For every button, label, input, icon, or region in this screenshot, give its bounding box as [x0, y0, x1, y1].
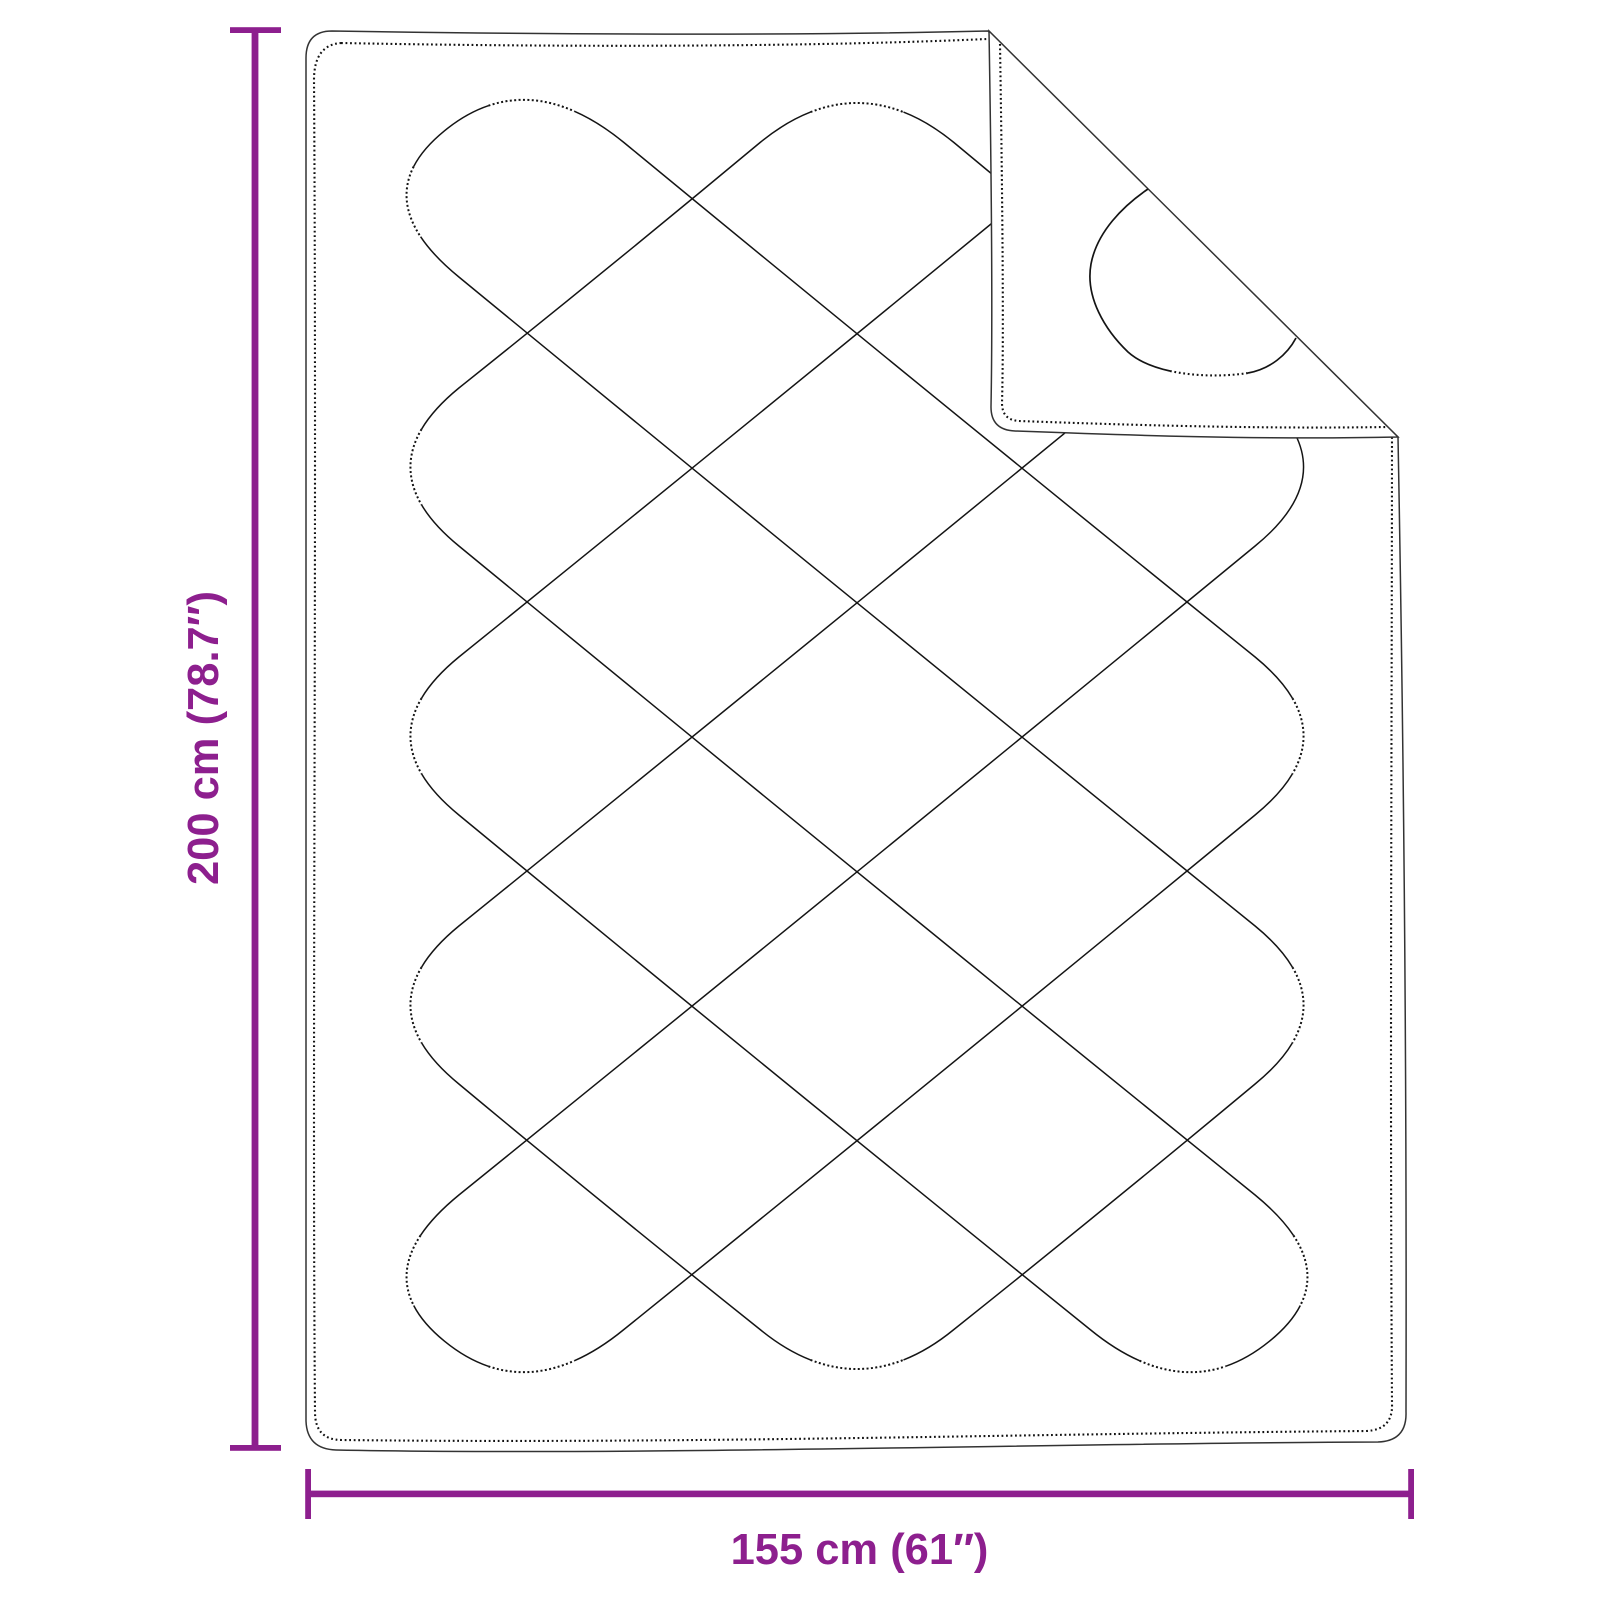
svg-text:200 cm (78.7″): 200 cm (78.7″) [180, 591, 228, 885]
svg-text:155 cm (61″): 155 cm (61″) [731, 1526, 989, 1574]
